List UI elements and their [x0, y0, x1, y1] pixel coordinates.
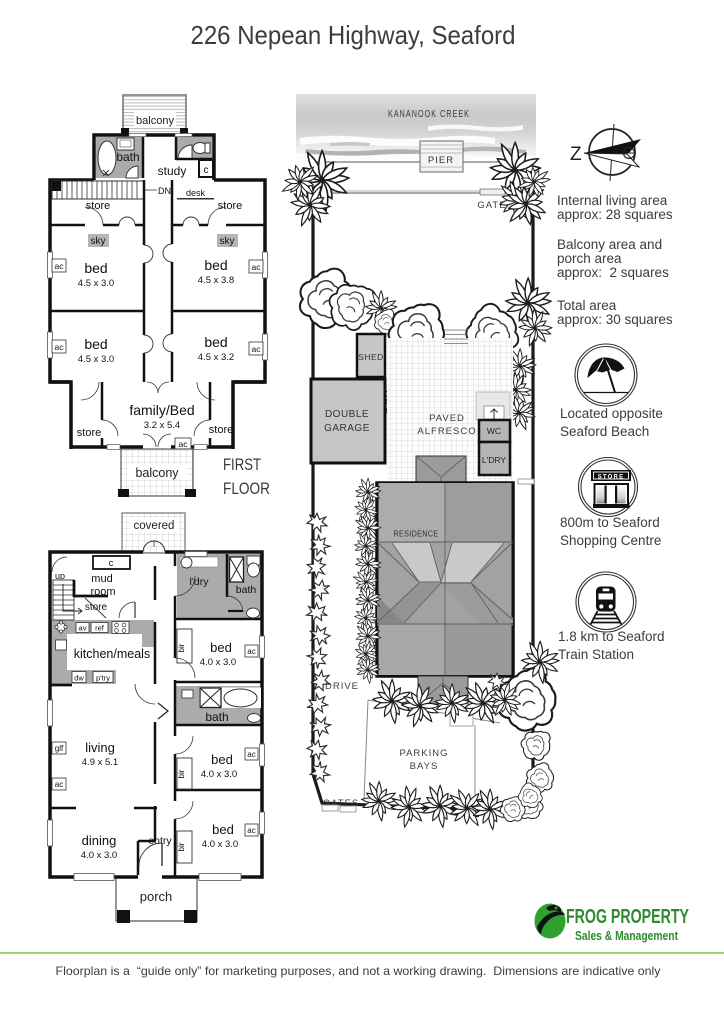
svg-text:kitchen/meals: kitchen/meals	[74, 647, 150, 661]
svg-text:BAYS: BAYS	[410, 761, 439, 772]
svg-text:sky: sky	[91, 236, 106, 247]
svg-text:STORE: STORE	[598, 475, 625, 481]
svg-text:4.5 x 3.0: 4.5 x 3.0	[78, 354, 114, 365]
svg-text:ref: ref	[95, 624, 105, 633]
svg-text:ac: ac	[252, 344, 262, 354]
svg-text:sky: sky	[220, 236, 235, 247]
svg-text:Sales & Management: Sales & Management	[575, 928, 679, 943]
svg-text:bir: bir	[177, 769, 186, 778]
svg-text:bed: bed	[204, 257, 227, 273]
svg-text:Internal living area: Internal living area	[557, 193, 668, 208]
svg-text:approx: 30 squares: approx: 30 squares	[557, 312, 673, 327]
svg-text:GATE: GATE	[477, 200, 506, 211]
svg-text:bir: bir	[177, 643, 186, 652]
svg-text:approx: 2 squares: approx: 2 squares	[557, 265, 669, 280]
svg-text:desk: desk	[186, 188, 206, 198]
svg-text:Seaford Beach: Seaford Beach	[560, 424, 649, 439]
svg-text:up: up	[55, 571, 65, 581]
svg-text:ac: ac	[55, 780, 63, 789]
svg-text:glf: glf	[55, 744, 64, 753]
svg-text:bath: bath	[205, 710, 228, 724]
svg-text:ac: ac	[247, 826, 255, 835]
svg-text:av: av	[79, 624, 87, 633]
svg-text:dw: dw	[74, 674, 84, 683]
svg-text:porch: porch	[140, 889, 173, 904]
svg-text:ac: ac	[247, 647, 255, 656]
svg-text:Z: Z	[570, 144, 582, 165]
svg-text:DN: DN	[158, 186, 171, 196]
svg-text:RESIDENCE: RESIDENCE	[394, 529, 439, 539]
svg-text:bed: bed	[211, 752, 233, 767]
svg-text:c: c	[109, 558, 114, 569]
svg-text:800m to Seaford: 800m to Seaford	[560, 515, 660, 530]
svg-text:store: store	[86, 200, 110, 212]
svg-text:KANANOOK CREEK: KANANOOK CREEK	[388, 108, 470, 120]
svg-text:bed: bed	[210, 640, 232, 655]
svg-text:DRIVE: DRIVE	[325, 681, 359, 692]
svg-text:PARKING: PARKING	[399, 748, 448, 759]
svg-text:bath: bath	[116, 150, 139, 164]
svg-text:Train Station: Train Station	[558, 647, 634, 662]
svg-text:GARAGE: GARAGE	[324, 423, 370, 434]
svg-text:store: store	[209, 424, 233, 436]
svg-text:FROG PROPERTY: FROG PROPERTY	[566, 906, 689, 928]
svg-text:family/Bed: family/Bed	[129, 402, 194, 418]
svg-text:ac: ac	[247, 750, 255, 759]
svg-text:4.0 x 3.0: 4.0 x 3.0	[201, 769, 237, 780]
svg-text:store: store	[85, 602, 108, 613]
svg-text:ac: ac	[252, 262, 262, 272]
svg-text:p'try: p'try	[96, 674, 110, 683]
svg-text:store: store	[77, 427, 101, 439]
svg-text:SHED: SHED	[358, 352, 384, 362]
svg-text:store: store	[218, 200, 242, 212]
svg-text:bed: bed	[84, 336, 107, 352]
svg-text:4.0 x 3.0: 4.0 x 3.0	[200, 657, 236, 668]
svg-text:4.5 x 3.0: 4.5 x 3.0	[78, 278, 114, 289]
svg-text:WC: WC	[487, 426, 501, 436]
svg-text:4.0 x 3.0: 4.0 x 3.0	[81, 850, 117, 861]
svg-text:FLOOR: FLOOR	[223, 479, 270, 498]
svg-text:PIER: PIER	[428, 155, 454, 166]
svg-text:balcony: balcony	[135, 466, 179, 480]
svg-text:ALFRESCO: ALFRESCO	[417, 426, 476, 437]
svg-text:bir: bir	[177, 842, 186, 851]
svg-text:Total area: Total area	[557, 298, 617, 313]
svg-text:ac: ac	[55, 342, 65, 352]
svg-text:ac: ac	[179, 439, 189, 449]
svg-text:4.5 x 3.8: 4.5 x 3.8	[198, 275, 234, 286]
svg-text:3.2 x 5.4: 3.2 x 5.4	[144, 420, 180, 431]
svg-text:FIRST: FIRST	[223, 455, 261, 474]
svg-text:Floorplan is a “guide only” f: Floorplan is a “guide only” for marketin…	[56, 964, 661, 978]
svg-text:bed: bed	[204, 334, 227, 350]
svg-text:bath: bath	[236, 584, 257, 596]
svg-text:Shopping Centre: Shopping Centre	[560, 533, 661, 548]
svg-text:Located opposite: Located opposite	[560, 406, 663, 421]
svg-text:covered: covered	[134, 520, 175, 532]
svg-text:approx: 28 squares: approx: 28 squares	[557, 207, 673, 222]
svg-text:bed: bed	[84, 260, 107, 276]
svg-text:dining: dining	[82, 833, 117, 848]
svg-text:study: study	[158, 164, 187, 178]
svg-text:DOUBLE: DOUBLE	[325, 409, 369, 420]
svg-text:4.0 x 3.0: 4.0 x 3.0	[202, 839, 238, 850]
svg-text:L'DRY: L'DRY	[482, 455, 506, 465]
svg-text:bed: bed	[212, 822, 234, 837]
svg-text:living: living	[85, 740, 115, 755]
svg-text:4.9 x 5.1: 4.9 x 5.1	[82, 757, 118, 768]
svg-text:4.5 x 3.2: 4.5 x 3.2	[198, 352, 234, 363]
svg-text:PAVED: PAVED	[429, 413, 465, 424]
svg-text:ac: ac	[55, 261, 65, 271]
svg-text:Balcony area and: Balcony area and	[557, 237, 662, 252]
svg-text:c: c	[204, 165, 209, 176]
svg-text:porch area: porch area	[557, 251, 622, 266]
svg-text:mud: mud	[91, 573, 112, 585]
svg-text:balcony: balcony	[136, 115, 174, 127]
svg-text:226 Nepean Highway, Seaford: 226 Nepean Highway, Seaford	[191, 20, 516, 50]
